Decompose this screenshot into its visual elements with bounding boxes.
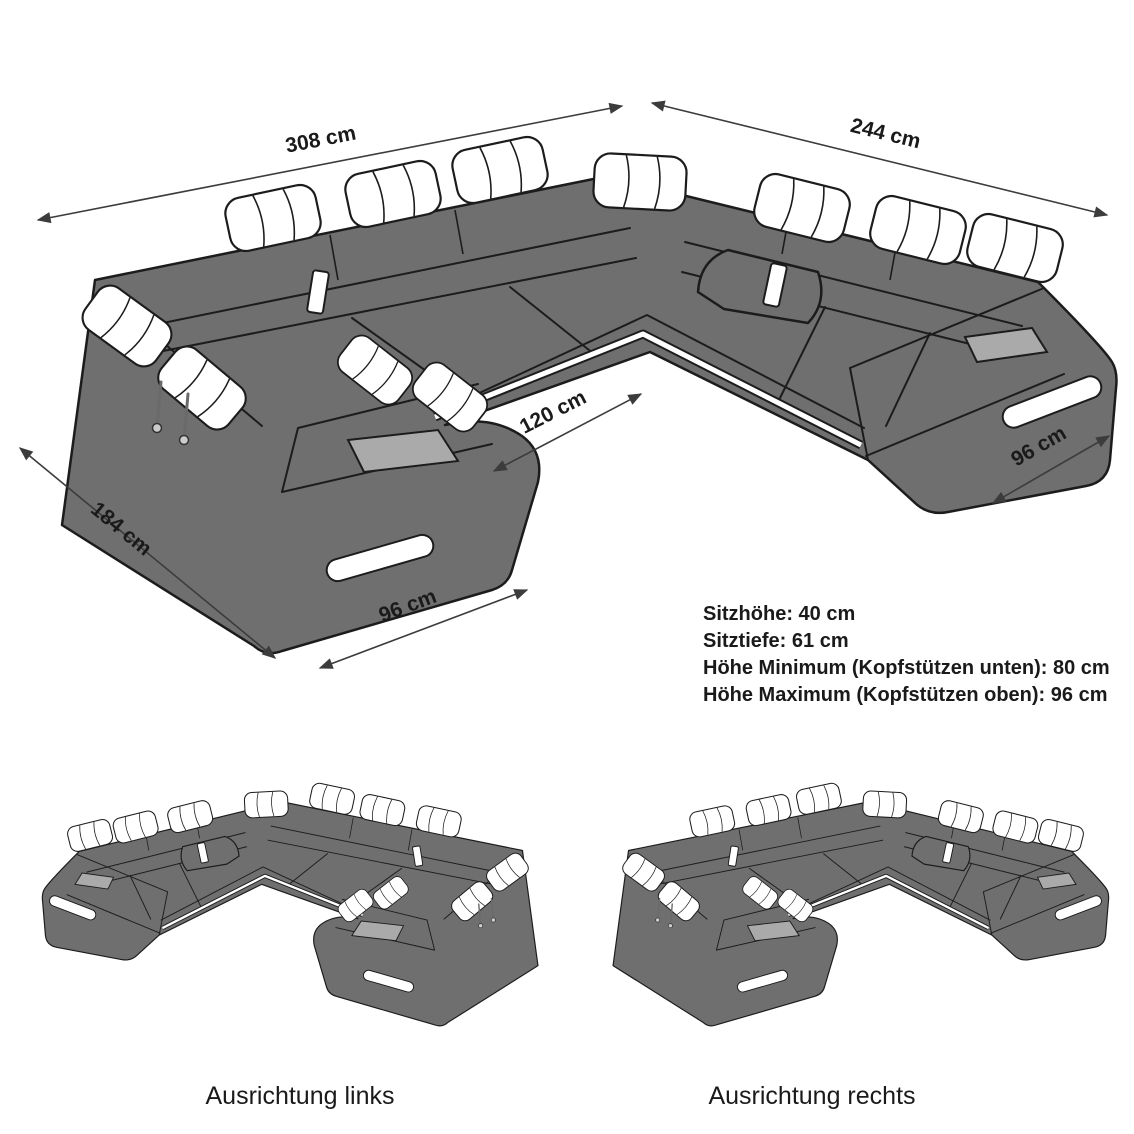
- variant-label-right: Ausrichtung rechts: [708, 1082, 915, 1110]
- spec-seat-depth: Sitztiefe: 61 cm: [703, 630, 849, 652]
- diagram-svg: 308 cm 244 cm 184 cm 96 cm 120 cm 96 cm …: [0, 0, 1134, 1134]
- sofa-variant-left-view: [42, 782, 538, 1026]
- variant-label-left: Ausrichtung links: [206, 1082, 395, 1110]
- variant-row: Ausrichtung links Ausrichtung rechts: [42, 782, 1108, 1110]
- sofa-dimension-diagram: 308 cm 244 cm 184 cm 96 cm 120 cm 96 cm …: [0, 0, 1134, 1134]
- spec-height-max: Höhe Maximum (Kopfstützen oben): 96 cm: [703, 684, 1107, 706]
- dimension-right-depth: 244 cm: [652, 103, 1107, 215]
- sofa-variant-right-view: [613, 782, 1109, 1026]
- spec-height-min: Höhe Minimum (Kopfstützen unten): 80 cm: [703, 657, 1110, 679]
- spec-seat-height: Sitzhöhe: 40 cm: [703, 603, 855, 625]
- dimension-label: 308 cm: [284, 122, 358, 158]
- spec-block: Sitzhöhe: 40 cm Sitztiefe: 61 cm Höhe Mi…: [703, 603, 1110, 706]
- dimension-label: 244 cm: [848, 114, 923, 153]
- sofa-main-view: [62, 134, 1117, 653]
